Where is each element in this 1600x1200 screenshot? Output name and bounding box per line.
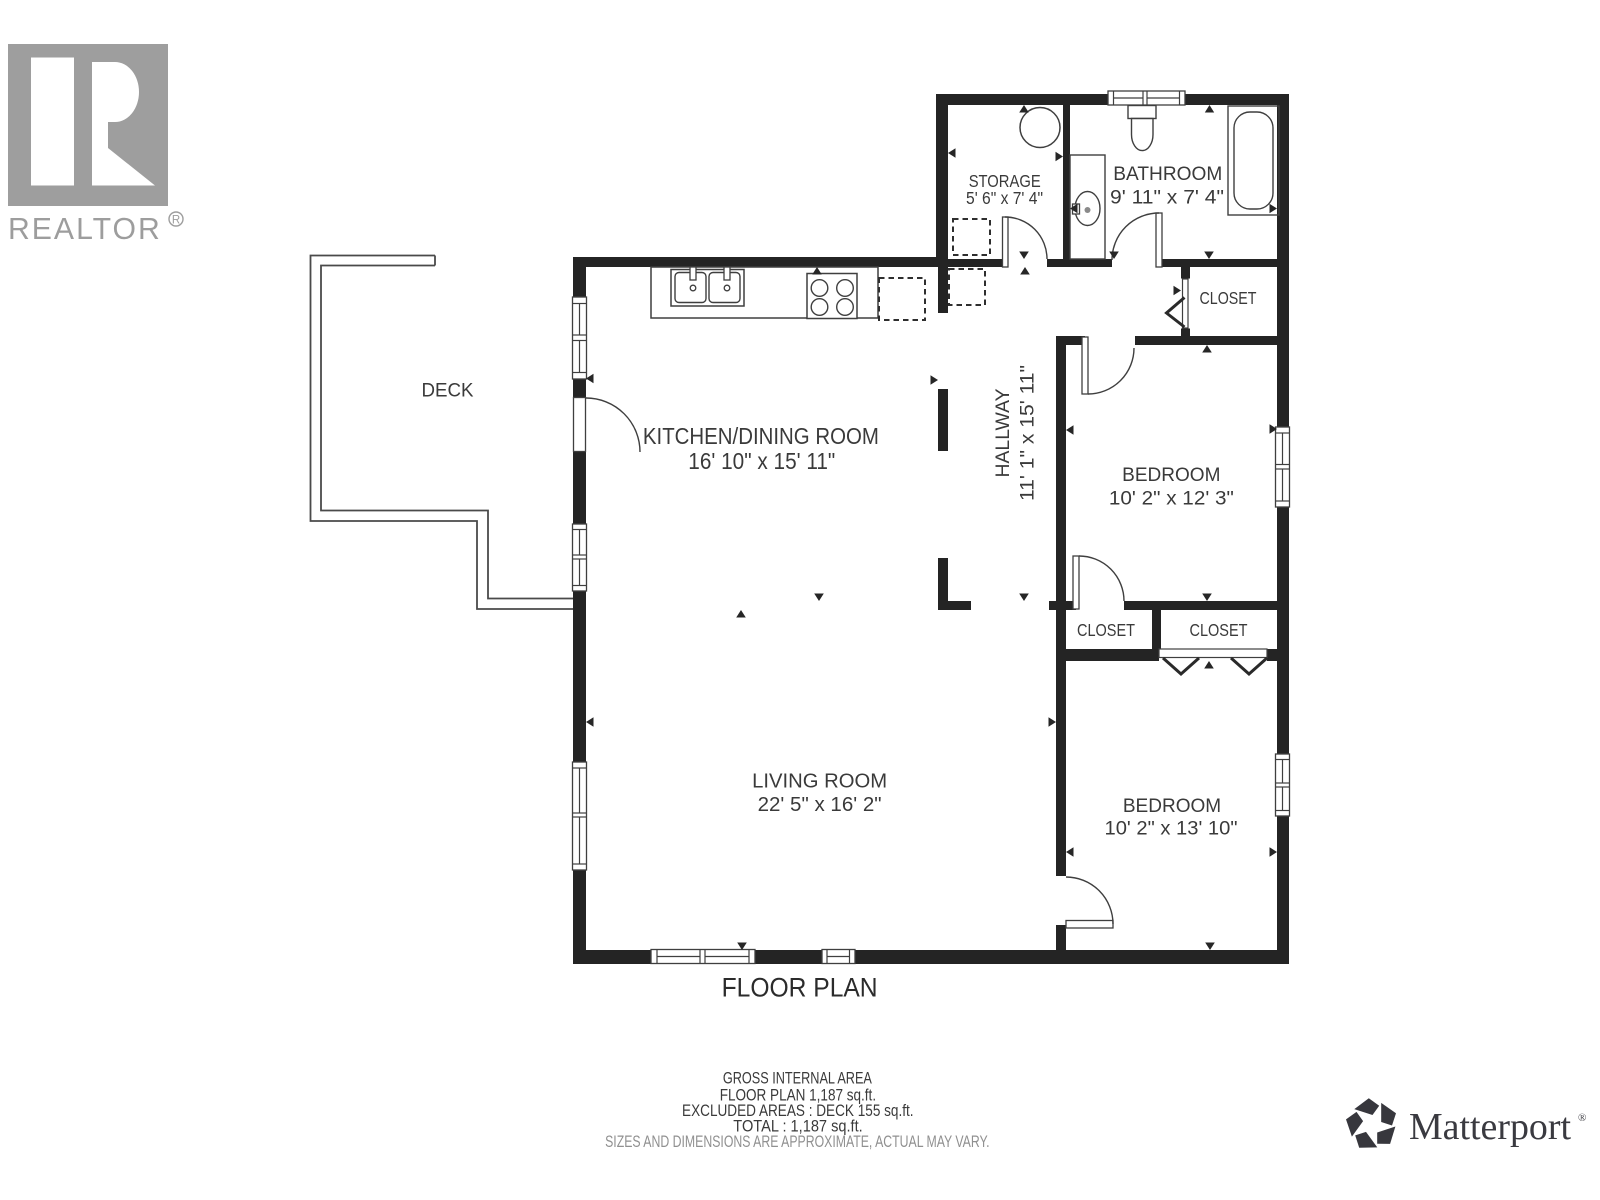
svg-text:10' 2" x 13' 10": 10' 2" x 13' 10"	[1105, 818, 1238, 839]
svg-text:9' 11" x 7' 4": 9' 11" x 7' 4"	[1110, 188, 1224, 209]
svg-text:DECK: DECK	[422, 381, 474, 402]
svg-text:CLOSET: CLOSET	[1077, 620, 1135, 640]
svg-text:16' 10" x 15' 11": 16' 10" x 15' 11"	[688, 448, 835, 474]
svg-text:10' 2" x 12' 3": 10' 2" x 12' 3"	[1109, 488, 1234, 509]
svg-text:LIVING ROOM: LIVING ROOM	[752, 771, 887, 793]
svg-text:R: R	[172, 215, 180, 227]
svg-text:®: ®	[1578, 1112, 1586, 1124]
svg-text:KITCHEN/DINING ROOM: KITCHEN/DINING ROOM	[643, 423, 879, 449]
svg-text:22' 5" x 16' 2": 22' 5" x 16' 2"	[758, 794, 882, 816]
svg-text:CLOSET: CLOSET	[1200, 288, 1257, 308]
svg-text:11' 1" x 15' 11": 11' 1" x 15' 11"	[1017, 365, 1038, 501]
svg-text:REALTOR: REALTOR	[8, 213, 162, 246]
svg-text:CLOSET: CLOSET	[1190, 620, 1248, 640]
svg-text:GROSS INTERNAL AREA: GROSS INTERNAL AREA	[723, 1070, 872, 1088]
svg-text:BATHROOM: BATHROOM	[1113, 164, 1222, 185]
svg-text:FLOOR PLAN: FLOOR PLAN	[722, 972, 878, 1002]
svg-text:SIZES AND DIMENSIONS ARE APPRO: SIZES AND DIMENSIONS ARE APPROXIMATE, AC…	[605, 1133, 989, 1151]
svg-text:HALLWAY: HALLWAY	[993, 388, 1014, 477]
svg-text:5' 6" x 7' 4": 5' 6" x 7' 4"	[966, 188, 1043, 208]
svg-text:Matterport: Matterport	[1409, 1106, 1571, 1148]
svg-text:BEDROOM: BEDROOM	[1123, 796, 1221, 817]
svg-text:BEDROOM: BEDROOM	[1122, 465, 1220, 486]
